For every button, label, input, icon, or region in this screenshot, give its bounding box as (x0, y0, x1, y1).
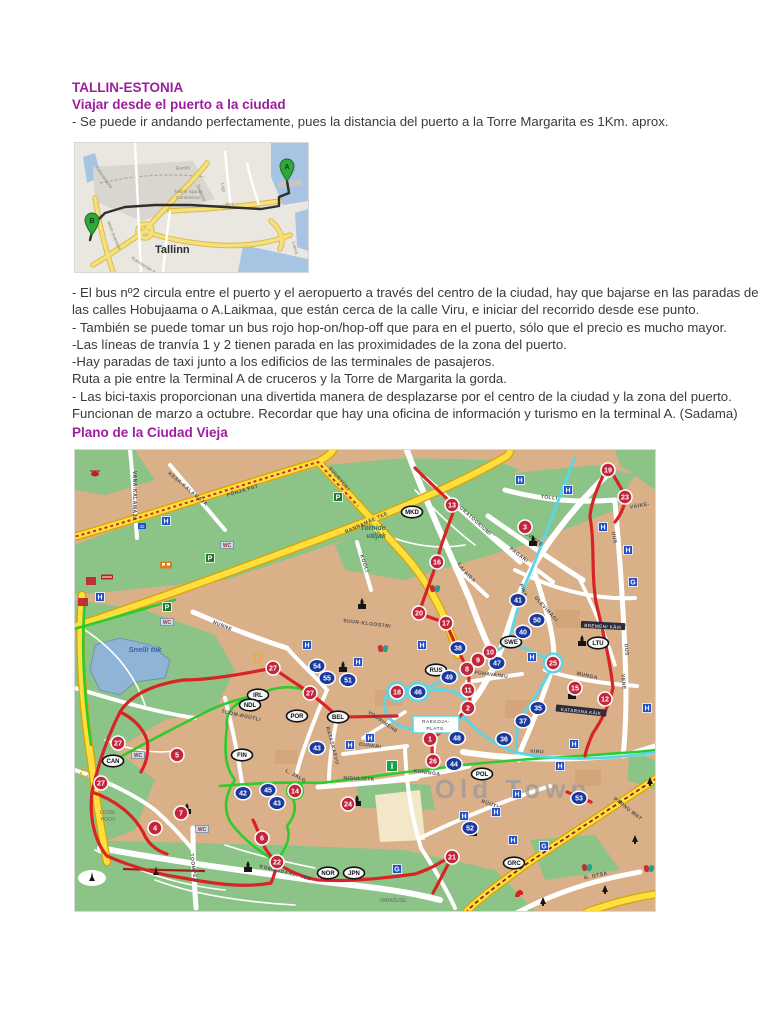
hotel-badge: H (346, 741, 355, 750)
svg-text:WC: WC (134, 753, 143, 759)
svg-text:POR: POR (290, 714, 304, 720)
tour-stop-27: 27 (266, 661, 280, 675)
embassy-marker-NOR: NOR (318, 867, 339, 879)
embassy-marker-FIN: FIN (232, 749, 253, 761)
svg-text:26: 26 (429, 757, 437, 766)
tour-stop-14: 14 (288, 784, 302, 798)
embassy-marker-MKD: MKD (402, 506, 423, 518)
body-line: - El bus nº2 circula entre el puerto y e… (72, 284, 759, 301)
hotel-badge: H (570, 740, 579, 749)
tour-stop-1: 1 (423, 732, 437, 746)
svg-text:H: H (163, 519, 168, 526)
city-label: Tallinn (155, 244, 190, 256)
svg-text:H: H (493, 810, 498, 817)
sight-stop-51: 51 (340, 673, 356, 687)
area-label: väljak (366, 533, 387, 540)
svg-text:21: 21 (448, 853, 456, 862)
svg-text:35: 35 (534, 706, 542, 713)
svg-text:37: 37 (519, 719, 527, 726)
svg-text:G: G (630, 580, 636, 587)
tour-stop-12: 12 (598, 692, 612, 706)
hotel-badge: H (513, 790, 522, 799)
svg-text:1: 1 (428, 735, 432, 744)
sight-stop-38: 38 (450, 641, 466, 655)
raekoja-plats-label: RAEKOJA-PLATS. (413, 716, 459, 733)
svg-text:22: 22 (273, 858, 281, 867)
redbldg-icon (78, 598, 88, 606)
hotel-badge: H (556, 762, 565, 771)
hotel-badge: H (492, 808, 501, 817)
svg-text:H: H (565, 488, 570, 495)
svg-text:G: G (541, 844, 547, 851)
train-icon (101, 575, 113, 580)
sight-stop-43: 43 (309, 741, 325, 755)
tour-stop-2: 2 (461, 701, 475, 715)
svg-text:MKD: MKD (405, 510, 419, 516)
svg-text:46: 46 (414, 690, 422, 697)
tour-stop-22: 22 (270, 855, 284, 869)
tour-stop-5: 5 (170, 748, 184, 762)
roadnum-badge: 32 (138, 523, 146, 529)
exchange-badge: G (629, 578, 638, 587)
svg-text:5: 5 (175, 751, 179, 760)
tour-stop-26: 26 (426, 754, 440, 768)
svg-text:23: 23 (621, 493, 629, 502)
svg-text:36: 36 (500, 737, 508, 744)
svg-text:53: 53 (575, 796, 583, 803)
tour-stop-25: 25 (544, 654, 563, 673)
exchange-badge: G (540, 842, 549, 851)
old-town-map-image: TornideväljakSnelli tiikLOSSI-HOOVVABADU… (75, 450, 655, 911)
svg-text:G: G (394, 867, 400, 874)
svg-text:43: 43 (273, 801, 281, 808)
svg-text:H: H (461, 814, 466, 821)
tour-stop-4: 4 (148, 821, 162, 835)
street-label: VANA-KALAMAJA (131, 471, 137, 521)
svg-text:24: 24 (344, 800, 352, 809)
svg-text:17: 17 (442, 619, 450, 628)
svg-text:42: 42 (239, 791, 247, 798)
svg-text:20: 20 (415, 609, 423, 618)
svg-text:NDL: NDL (244, 703, 257, 709)
svg-text:45: 45 (264, 788, 272, 795)
transport-paragraph: - El bus nº2 circula entre el puerto y e… (72, 284, 759, 422)
svg-text:H: H (557, 764, 562, 771)
svg-text:A: A (284, 164, 289, 171)
exchange-badge: G (393, 865, 402, 874)
sight-stop-48: 48 (449, 731, 465, 745)
hotel-badge: H (564, 486, 573, 495)
svg-text:16: 16 (433, 558, 441, 567)
body-line: -Las líneas de tranvía 1 y 2 tienen para… (72, 336, 759, 353)
svg-text:49: 49 (445, 675, 453, 682)
svg-text:PLATS.: PLATS. (426, 726, 445, 732)
tour-stop-18: 18 (388, 683, 407, 702)
svg-text:WC: WC (163, 620, 172, 626)
sight-stop-44: 44 (446, 757, 462, 771)
section2-heading: Plano de la Ciudad Vieja (72, 425, 228, 440)
svg-text:4: 4 (153, 824, 157, 833)
svg-text:LTU: LTU (592, 641, 603, 647)
hotel-badge: H (460, 812, 469, 821)
body-line: -Hay paradas de taxi junto a los edifici… (72, 353, 759, 370)
svg-text:UUS: UUS (622, 644, 629, 657)
svg-text:13: 13 (448, 501, 456, 510)
svg-text:POL: POL (476, 772, 489, 778)
raekoja-plats-box: RAEKOJA-PLATS. (413, 716, 459, 733)
svg-text:43: 43 (313, 746, 321, 753)
svg-text:B: B (89, 218, 94, 225)
port-route-map-image: KalasadamaRumbiTallink Spa &ConferenceSa… (75, 143, 308, 272)
tour-stop-27: 27 (94, 776, 108, 790)
street-label: UUS (622, 644, 629, 657)
hotel-badge: H (354, 658, 363, 667)
body-line: - También se puede tomar un bus rojo hop… (72, 319, 759, 336)
svg-text:FIN: FIN (237, 753, 247, 759)
body-line: Funcionan de marzo a octubre. Recordar q… (72, 405, 759, 422)
tour-stop-20: 20 (412, 606, 426, 620)
redbldg-icon (86, 577, 96, 585)
tour-stop-27: 27 (303, 686, 317, 700)
svg-text:JPN: JPN (348, 871, 360, 877)
svg-text:NOR: NOR (321, 871, 335, 877)
embassy-marker-POR: POR (287, 710, 308, 722)
svg-text:H: H (419, 643, 424, 650)
embassy-marker-GRC: GRC (504, 857, 525, 869)
area-label: LOSSI- (100, 810, 117, 816)
area-label: Snelli tiik (129, 645, 163, 654)
svg-text:27: 27 (269, 664, 277, 673)
street-label: Rumbi (176, 165, 190, 172)
svg-text:H: H (529, 655, 534, 662)
svg-text:14: 14 (291, 787, 299, 796)
sight-stop-49: 49 (441, 670, 457, 684)
street-label: Kai (226, 201, 234, 208)
svg-text:NIGULISTE: NIGULISTE (343, 775, 375, 782)
svg-text:38: 38 (454, 646, 462, 653)
tour-stop-23: 23 (618, 490, 632, 504)
tour-stop-6: 6 (255, 831, 269, 845)
svg-text:50: 50 (533, 618, 541, 625)
svg-text:55: 55 (323, 676, 331, 683)
tour-stop-16: 16 (430, 555, 444, 569)
tour-stop-15: 15 (568, 681, 582, 695)
svg-text:9: 9 (476, 656, 480, 665)
svg-text:RAEKOJA-: RAEKOJA- (422, 719, 450, 725)
svg-text:CAN: CAN (107, 759, 120, 765)
svg-text:19: 19 (604, 466, 612, 475)
hotel-badge: H (599, 523, 608, 532)
svg-text:41: 41 (514, 598, 522, 605)
svg-text:P: P (208, 556, 213, 563)
body-line: las calles Hobujaama o A.Laikmaa, que es… (72, 301, 759, 318)
area-label: VABADUSE (380, 898, 408, 904)
embassy-marker-JPN: JPN (344, 867, 365, 879)
svg-text:12: 12 (601, 695, 609, 704)
svg-text:H: H (347, 743, 352, 750)
svg-text:10: 10 (486, 648, 494, 657)
tour-stop-11: 11 (461, 683, 475, 697)
svg-text:27: 27 (114, 739, 122, 748)
bus-icon (160, 562, 172, 569)
svg-text:25: 25 (549, 659, 557, 668)
parking-badge: P (206, 554, 215, 563)
svg-text:27: 27 (306, 689, 314, 698)
svg-text:11: 11 (464, 686, 472, 695)
tour-stop-21: 21 (445, 850, 459, 864)
svg-text:2: 2 (466, 704, 470, 713)
tour-stop-7: 7 (174, 806, 188, 820)
svg-text:32: 32 (139, 524, 145, 529)
embassy-marker-CAN: CAN (103, 755, 124, 767)
svg-text:WC: WC (223, 543, 232, 549)
hotel-badge: H (516, 476, 525, 485)
svg-text:H: H (97, 595, 102, 602)
tour-stop-3: 3 (518, 520, 532, 534)
svg-text:47: 47 (493, 661, 501, 668)
svg-text:P: P (165, 605, 170, 612)
sight-stop-52: 52 (462, 821, 478, 835)
area-label: Old Town (435, 774, 592, 804)
svg-text:3: 3 (523, 523, 527, 532)
area-label: HOOV (101, 817, 116, 823)
hotel-badge: H (366, 734, 375, 743)
old-town-map: TornideväljakSnelli tiikLOSSI-HOOVVABADU… (75, 450, 655, 911)
section1-heading: Viajar desde el puerto a la ciudad (72, 97, 286, 112)
svg-text:52: 52 (466, 826, 474, 833)
svg-text:H: H (367, 736, 372, 743)
svg-text:8: 8 (465, 665, 469, 674)
embassy-marker-NDL: NDL (240, 699, 261, 711)
wc-badge: WC (196, 826, 209, 834)
svg-text:54: 54 (313, 664, 321, 671)
svg-text:SWE: SWE (504, 640, 518, 646)
svg-text:18: 18 (393, 688, 401, 697)
embassy-marker-BEL: BEL (328, 711, 349, 723)
tour-stop-27: 27 (111, 736, 125, 750)
parking-badge: P (163, 603, 172, 612)
parking-badge: P (334, 493, 343, 502)
svg-text:40: 40 (519, 630, 527, 637)
svg-text:P: P (336, 495, 341, 502)
body-line: - Las bici-taxis proporcionan una divert… (72, 388, 759, 405)
svg-text:IRL: IRL (253, 693, 263, 699)
page-title: TALLIN-ESTONIA (72, 80, 183, 95)
hotel-badge: H (509, 836, 518, 845)
sight-stop-45: 45 (260, 783, 276, 797)
tour-stop-13: 13 (445, 498, 459, 512)
svg-text:48: 48 (453, 736, 461, 743)
sight-stop-43: 43 (269, 796, 285, 810)
svg-text:15: 15 (571, 684, 579, 693)
sight-stop-53: 53 (571, 791, 587, 805)
svg-text:H: H (355, 660, 360, 667)
intro-line: - Se puede ir andando perfectamente, pue… (72, 114, 668, 129)
hotel-badge: H (528, 653, 537, 662)
svg-text:27: 27 (97, 779, 105, 788)
svg-text:BEL: BEL (332, 715, 344, 721)
wc-badge: WC (221, 542, 234, 550)
svg-text:44: 44 (450, 762, 458, 769)
svg-text:GRC: GRC (507, 861, 521, 867)
hotel-badge: H (643, 704, 652, 713)
sight-stop-50: 50 (529, 613, 545, 627)
wc-badge: WC (161, 619, 174, 627)
svg-text:51: 51 (344, 678, 352, 685)
svg-text:H: H (304, 643, 309, 650)
svg-text:WC: WC (198, 827, 207, 833)
svg-text:H: H (600, 525, 605, 532)
sight-stop-40: 40 (515, 625, 531, 639)
svg-text:VIRU: VIRU (530, 749, 544, 755)
body-line: Ruta a pie entre la Terminal A de crucer… (72, 370, 759, 387)
sight-stop-54: 54 (309, 659, 325, 673)
sight-stop-37: 37 (515, 714, 531, 728)
hotel-badge: H (162, 517, 171, 526)
svg-text:H: H (644, 706, 649, 713)
street-label: VIRU (530, 749, 544, 755)
sight-stop-55: 55 (319, 671, 335, 685)
sight-stop-42: 42 (235, 786, 251, 800)
sight-stop-41: 41 (510, 593, 526, 607)
hotel-badge: H (96, 593, 105, 602)
svg-text:6: 6 (260, 834, 264, 843)
street-label: NIGULISTE (343, 775, 375, 782)
svg-text:7: 7 (179, 809, 183, 818)
street-label: Conference (176, 195, 201, 201)
wc-badge: WC (132, 752, 145, 760)
svg-text:i: i (391, 761, 394, 771)
sight-stop-36: 36 (496, 732, 512, 746)
hotel-badge: H (624, 546, 633, 555)
tour-stop-19: 19 (601, 463, 615, 477)
embassy-marker-LTU: LTU (588, 637, 609, 649)
svg-text:RUS: RUS (430, 668, 443, 674)
svg-text:H: H (571, 742, 576, 749)
tour-stop-10: 10 (483, 645, 497, 659)
sight-stop-46: 46 (408, 683, 429, 701)
svg-text:H: H (510, 838, 515, 845)
tour-stop-24: 24 (341, 797, 355, 811)
port-route-map: KalasadamaRumbiTallink Spa &ConferenceSa… (75, 143, 308, 272)
svg-text:H: H (514, 792, 519, 799)
sight-stop-35: 35 (530, 701, 546, 715)
hotel-badge: H (418, 641, 427, 650)
tour-stop-17: 17 (439, 616, 453, 630)
info-badge: i (387, 761, 398, 772)
hotel-badge: H (303, 641, 312, 650)
embassy-marker-POL: POL (472, 768, 493, 780)
svg-text:H: H (625, 548, 630, 555)
svg-text:VANA-KALAMAJA: VANA-KALAMAJA (131, 471, 137, 521)
document-page: TALLIN-ESTONIA Viajar desde el puerto a … (0, 0, 768, 1024)
svg-text:H: H (517, 478, 522, 485)
